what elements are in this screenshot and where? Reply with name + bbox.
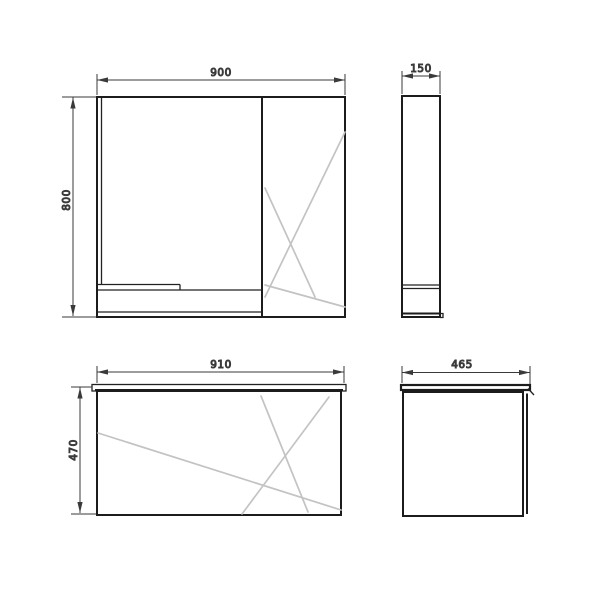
- vanity-width-dimension: 910: [97, 359, 344, 383]
- vanity-outline: [95, 390, 343, 515]
- vanity-depth-label: 465: [451, 359, 473, 371]
- vanity-width-label: 910: [210, 359, 232, 371]
- cabinet-height-dimension: 800: [61, 97, 96, 317]
- cabinet-depth-label: 150: [410, 63, 432, 75]
- reflection-line: [98, 433, 341, 510]
- vanity-front-view: 910 470: [68, 359, 346, 515]
- countertop-side: [401, 385, 530, 390]
- door-reflection-lines: [265, 132, 345, 307]
- vanity-side-view: 465: [401, 359, 534, 516]
- reflection-line: [242, 397, 329, 514]
- vanity-depth-dimension: 465: [402, 359, 530, 384]
- cabinet-width-dimension: 900: [97, 67, 345, 95]
- vanity-height-label: 470: [68, 439, 80, 461]
- vanity-side-body: [403, 392, 523, 516]
- cabinet-side-body: [402, 96, 440, 317]
- cabinet-width-label: 900: [210, 67, 232, 79]
- cabinet-height-label: 800: [61, 189, 73, 211]
- mirror-cabinet-front-view: 900 800: [61, 67, 345, 317]
- technical-drawing-canvas: 900 800 150: [0, 0, 600, 600]
- furniture-dimension-drawing: 900 800 150: [0, 0, 600, 600]
- cabinet-details: [98, 98, 262, 312]
- cabinet-depth-dimension: 150: [402, 63, 440, 94]
- vanity-side-countertop: [401, 385, 530, 390]
- vanity-side-outline: [403, 392, 527, 516]
- reflection-line: [261, 396, 308, 512]
- cabinet-side-outline: [402, 96, 440, 317]
- reflection-line: [265, 285, 345, 307]
- vanity-body: [97, 391, 341, 515]
- vanity-height-dimension: 470: [68, 387, 96, 514]
- vanity-reflection-lines: [98, 396, 341, 514]
- mirror-cabinet-side-view: 150: [402, 63, 443, 318]
